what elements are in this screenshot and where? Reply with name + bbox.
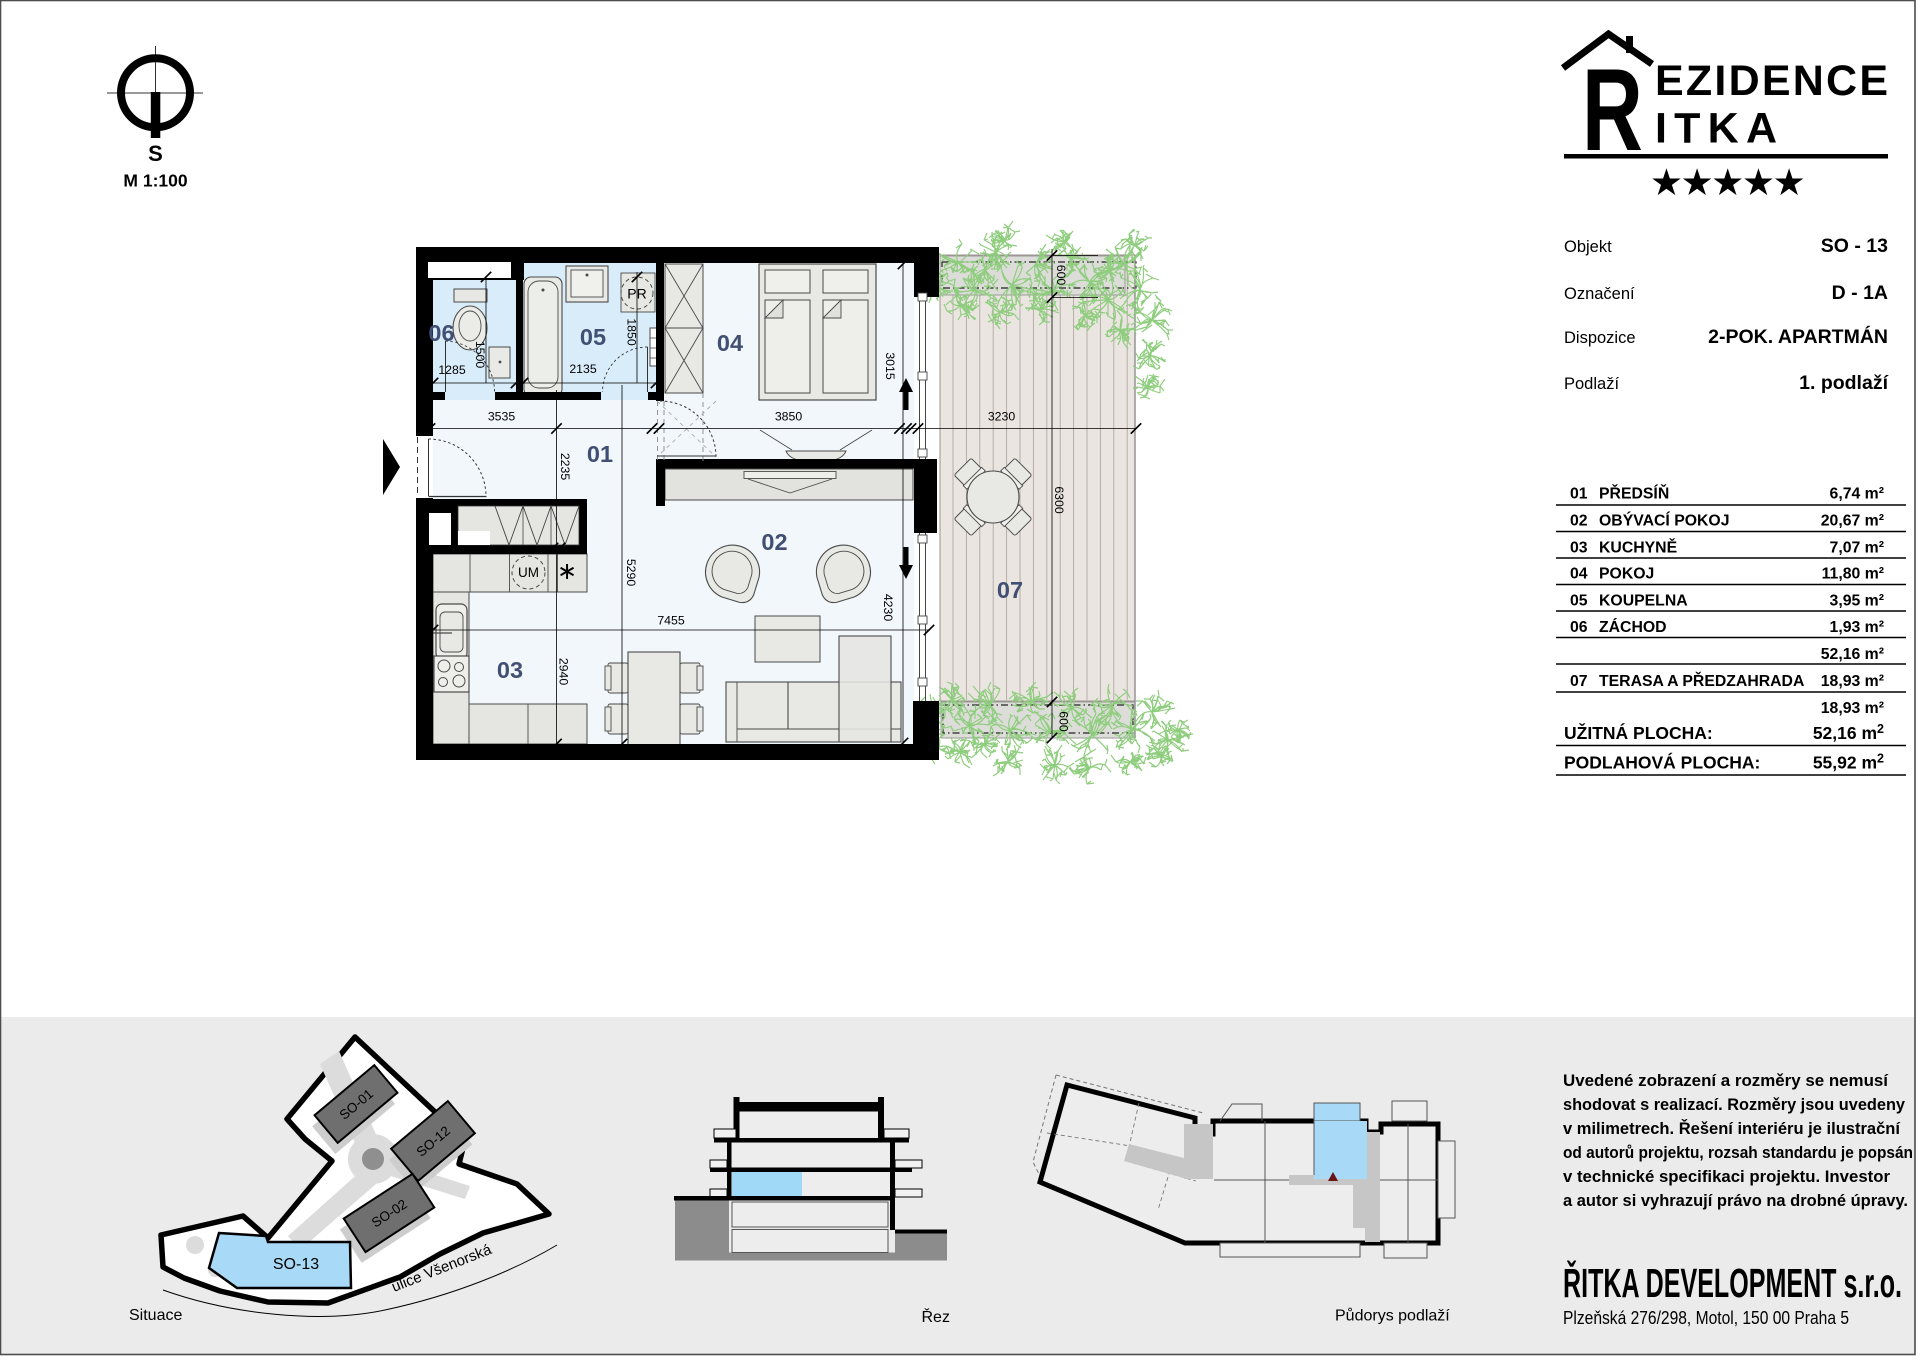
svg-text:KUCHYNĚ: KUCHYNĚ (1599, 538, 1677, 557)
svg-text:2-POK. APARTMÁN: 2-POK. APARTMÁN (1708, 325, 1888, 348)
svg-text:07: 07 (997, 577, 1023, 603)
svg-text:∗: ∗ (557, 558, 577, 585)
svg-text:v technické specifikaci projek: v technické specifikaci projektu. Invest… (1563, 1168, 1891, 1186)
svg-text:600: 600 (1057, 711, 1071, 732)
svg-text:v milimetrech. Řešení interiér: v milimetrech. Řešení interiéru je ilust… (1563, 1119, 1900, 1138)
svg-text:2135: 2135 (569, 362, 597, 376)
svg-text:7455: 7455 (657, 614, 685, 628)
svg-text:shodovat s realizací. Rozměry: shodovat s realizací. Rozměry jsou uvede… (1563, 1096, 1905, 1114)
svg-text:3850: 3850 (775, 410, 803, 424)
svg-text:03: 03 (497, 657, 523, 683)
svg-text:M 1:100: M 1:100 (123, 171, 187, 191)
svg-text:ITKA: ITKA (1655, 105, 1777, 153)
svg-text:SO - 13: SO - 13 (1821, 235, 1888, 257)
svg-text:D - 1A: D - 1A (1832, 282, 1888, 304)
svg-text:Půdorys podlaží: Půdorys podlaží (1335, 1307, 1450, 1325)
svg-text:PODLAHOVÁ PLOCHA:: PODLAHOVÁ PLOCHA: (1564, 752, 1760, 773)
svg-text:Objekt: Objekt (1564, 238, 1612, 256)
svg-text:UŽITNÁ PLOCHA:: UŽITNÁ PLOCHA: (1564, 722, 1713, 743)
svg-text:07: 07 (1570, 673, 1588, 690)
svg-text:SO-13: SO-13 (273, 1256, 319, 1273)
svg-text:Situace: Situace (129, 1307, 182, 1324)
svg-text:18,93 m²: 18,93 m² (1821, 673, 1884, 690)
svg-text:TERASA A PŘEDZAHRADA: TERASA A PŘEDZAHRADA (1599, 671, 1804, 690)
svg-text:1. podlaží: 1. podlaží (1799, 372, 1888, 394)
svg-text:04: 04 (717, 330, 743, 356)
svg-text:6300: 6300 (1052, 486, 1066, 514)
svg-text:01: 01 (1570, 486, 1588, 503)
svg-text:55,92 m2: 55,92 m2 (1813, 752, 1884, 773)
svg-text:01: 01 (587, 441, 613, 467)
svg-text:04: 04 (1570, 566, 1588, 583)
svg-text:Uvedené zobrazení a rozměry se: Uvedené zobrazení a rozměry se nemusí (1563, 1072, 1888, 1090)
svg-text:52,16 m²: 52,16 m² (1821, 646, 1884, 663)
svg-text:7,07 m²: 7,07 m² (1830, 540, 1884, 557)
svg-text:05: 05 (1570, 593, 1588, 610)
svg-text:600: 600 (1054, 265, 1068, 286)
svg-text:3,95 m²: 3,95 m² (1830, 593, 1884, 610)
svg-text:Plzeňská 276/298, Motol, 150 0: Plzeňská 276/298, Motol, 150 00 Praha 5 (1563, 1308, 1849, 1328)
svg-text:1285: 1285 (438, 363, 466, 377)
svg-text:3015: 3015 (883, 352, 897, 380)
svg-text:EZIDENCE: EZIDENCE (1655, 57, 1888, 105)
svg-text:2235: 2235 (558, 453, 572, 481)
svg-text:3535: 3535 (488, 410, 516, 424)
svg-text:2940: 2940 (557, 658, 571, 686)
svg-text:3230: 3230 (988, 410, 1016, 424)
svg-text:02: 02 (1570, 513, 1588, 530)
svg-text:52,16 m2: 52,16 m2 (1813, 722, 1884, 743)
svg-text:5290: 5290 (624, 559, 638, 587)
svg-text:06: 06 (428, 320, 454, 346)
svg-text:6,74 m²: 6,74 m² (1830, 486, 1884, 503)
svg-text:1500: 1500 (473, 341, 487, 369)
svg-text:Řez: Řez (922, 1307, 950, 1326)
svg-text:Dispozice: Dispozice (1564, 329, 1636, 347)
svg-text:03: 03 (1570, 540, 1588, 557)
svg-text:KOUPELNA: KOUPELNA (1599, 593, 1688, 610)
svg-text:11,80 m²: 11,80 m² (1822, 566, 1884, 583)
svg-text:POKOJ: POKOJ (1599, 566, 1654, 583)
svg-text:ZÁCHOD: ZÁCHOD (1599, 617, 1667, 636)
svg-text:S: S (148, 141, 163, 166)
svg-text:20,67 m²: 20,67 m² (1821, 513, 1884, 530)
svg-text:1,93 m²: 1,93 m² (1830, 619, 1884, 636)
svg-text:1850: 1850 (625, 318, 639, 346)
svg-text:05: 05 (580, 324, 606, 350)
svg-text:18,93 m²: 18,93 m² (1821, 700, 1884, 717)
svg-text:Označení: Označení (1564, 285, 1635, 303)
svg-text:UM: UM (518, 565, 539, 580)
svg-text:02: 02 (761, 529, 787, 555)
svg-text:PŘEDSÍŇ: PŘEDSÍŇ (1599, 484, 1669, 503)
svg-text:06: 06 (1570, 619, 1588, 636)
svg-text:ŘITKA DEVELOPMENT s.r.o.: ŘITKA DEVELOPMENT s.r.o. (1563, 1260, 1902, 1306)
svg-text:a autor si vyhrazují právo na: a autor si vyhrazují právo na drobné úpr… (1563, 1192, 1908, 1210)
svg-text:od autorů projektu, rozsah sta: od autorů projektu, rozsah standardu je … (1563, 1144, 1913, 1162)
svg-text:Podlaží: Podlaží (1564, 375, 1619, 393)
svg-text:★★★★★: ★★★★★ (1650, 162, 1804, 203)
svg-text:OBÝVACÍ POKOJ: OBÝVACÍ POKOJ (1599, 511, 1730, 530)
svg-text:4230: 4230 (881, 594, 895, 622)
